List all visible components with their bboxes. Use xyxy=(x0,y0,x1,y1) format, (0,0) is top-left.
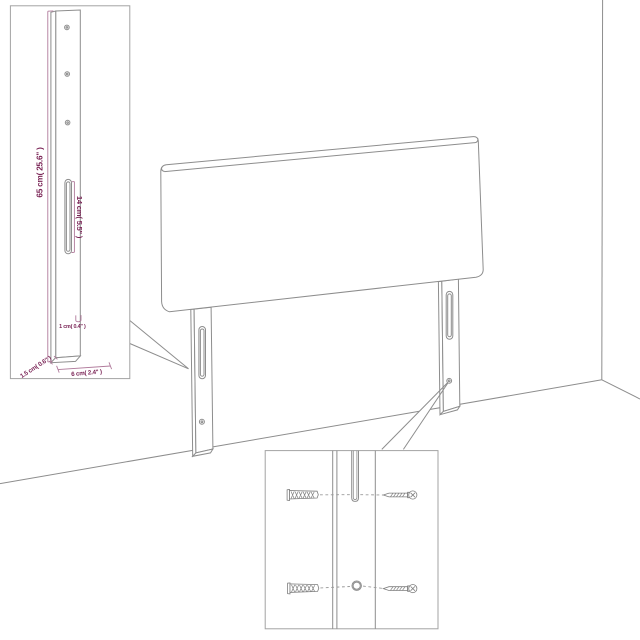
right-leg-screw-hole xyxy=(447,378,452,383)
diagram-svg: 65 cm( 25.6" ) 14 cm( 5.5" ) 1 cm( 0.4" … xyxy=(0,0,640,640)
left-leg xyxy=(191,307,213,456)
detail-leg-front-face xyxy=(56,10,81,358)
right-leg xyxy=(438,279,459,415)
slot-dimension-label: 14 cm( 5.5" ) xyxy=(75,196,84,239)
assembly-diagram: 65 cm( 25.6" ) 14 cm( 5.5" ) 1 cm( 0.4" … xyxy=(0,0,640,640)
right-leg-front-face xyxy=(442,279,460,412)
detail-leg-side-face xyxy=(51,11,56,363)
leg-detail-drawing xyxy=(51,10,80,363)
height-dimension-label: 65 cm( 25.6" ) xyxy=(36,147,45,198)
headboard-panel-outline xyxy=(161,137,483,312)
thickness-dimension-label: 1 cm( 0.4" ) xyxy=(59,324,86,330)
headboard-panel xyxy=(161,137,483,312)
callout-wedge-right-right-line xyxy=(403,381,449,449)
leg-detail-inset: 65 cm( 25.6" ) 14 cm( 5.5" ) 1 cm( 0.4" … xyxy=(10,6,129,380)
wall-corner-line xyxy=(602,0,603,380)
floor-line-right xyxy=(602,380,640,399)
left-leg-screw-hole xyxy=(199,419,204,424)
mounting-detail-inset xyxy=(265,451,438,629)
callout-wedge-right-left-line xyxy=(382,381,449,449)
callout-wedges xyxy=(130,321,449,450)
